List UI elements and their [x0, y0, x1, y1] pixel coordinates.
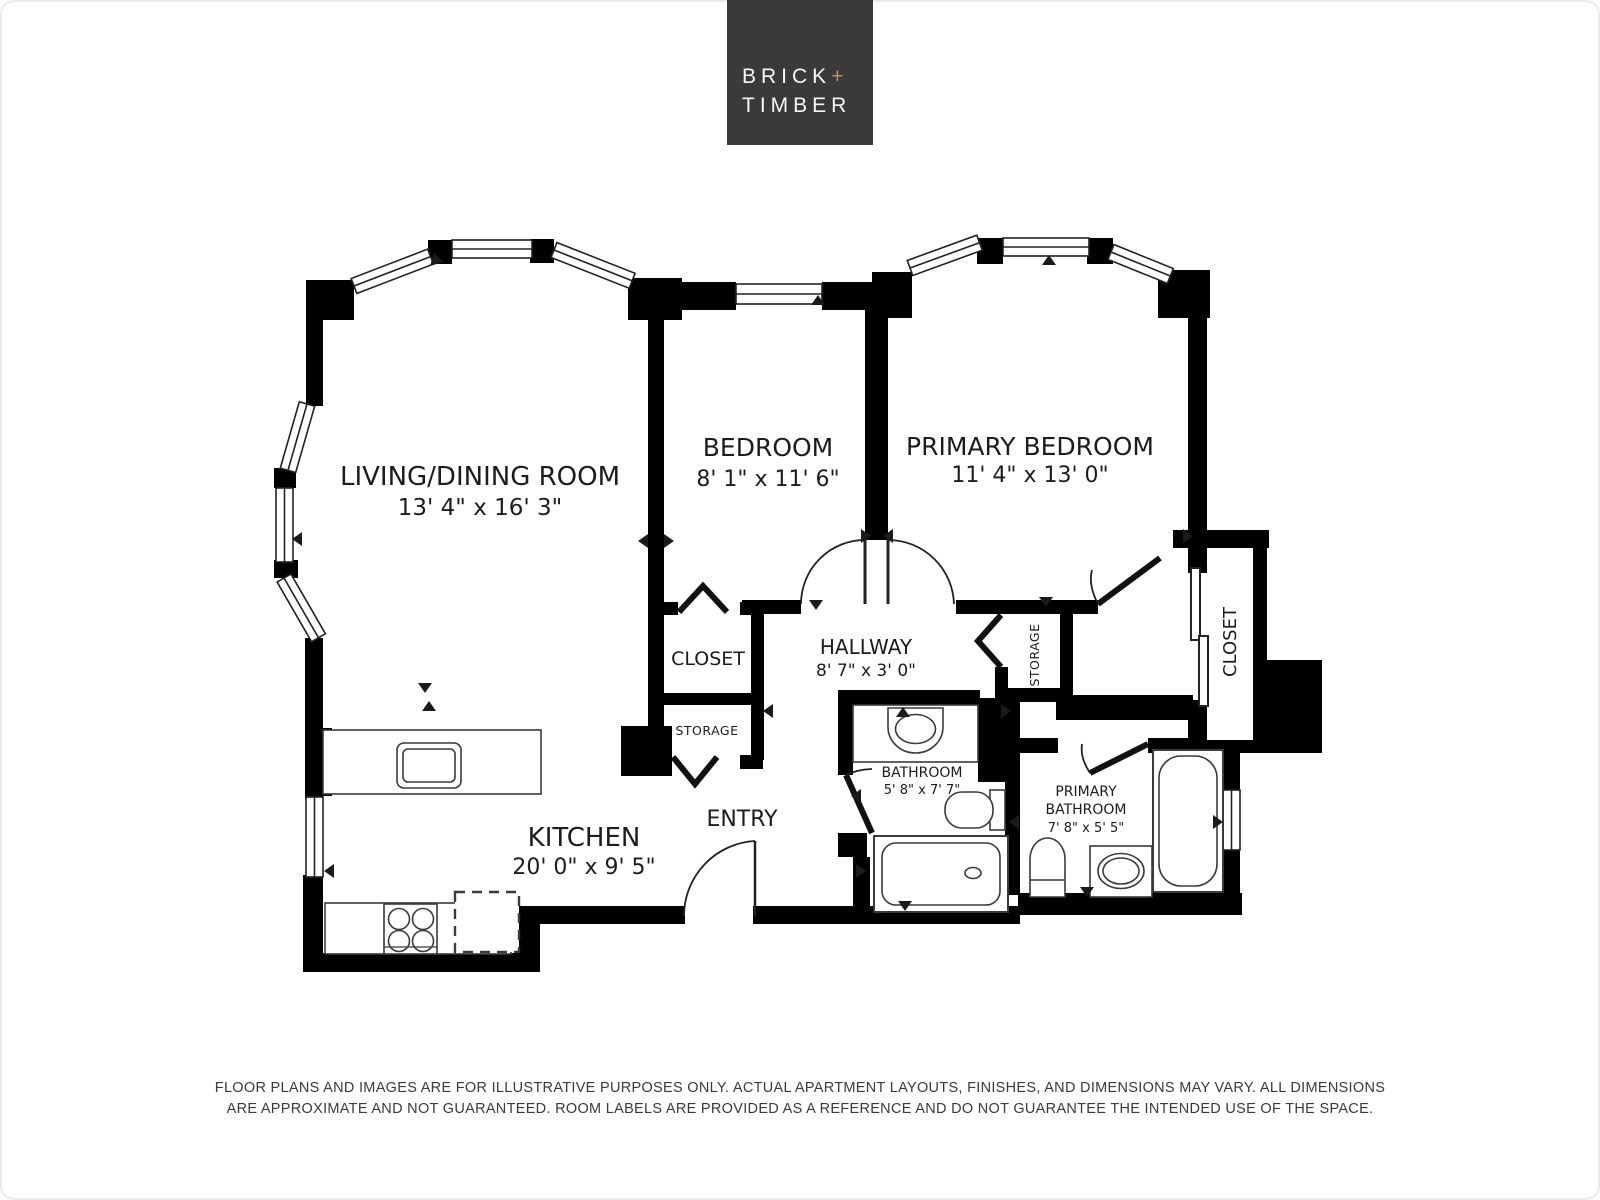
wall [1056, 695, 1193, 720]
wall [853, 857, 870, 909]
wall [1223, 753, 1240, 790]
wall [956, 600, 1098, 614]
disclaimer-line-2: ARE APPROXIMATE AND NOT GUARANTEED. ROOM… [0, 1099, 1600, 1120]
wall [303, 953, 540, 972]
living-room-dims: 13' 4" x 16' 3" [398, 495, 562, 521]
primary-bathtub-icon [1153, 750, 1223, 892]
window [907, 235, 982, 275]
window [1223, 790, 1240, 850]
disclaimer-line-1: FLOOR PLANS AND IMAGES ARE FOR ILLUSTRAT… [0, 1078, 1600, 1099]
closet-label: CLOSET [671, 648, 745, 670]
wall [742, 600, 801, 614]
refrigerator-icon [455, 892, 519, 952]
window [1003, 238, 1089, 256]
wall [978, 698, 1020, 782]
wall [1060, 601, 1073, 701]
wall [621, 726, 672, 776]
window [551, 243, 635, 289]
living-room-label: LIVING/DINING ROOM [340, 462, 620, 492]
primary-toilet-icon [1030, 838, 1065, 897]
hallway-label: HALLWAY [820, 635, 913, 659]
kitchen-island [323, 730, 541, 794]
bedroom-label: BEDROOM [703, 433, 834, 462]
labels-layer: LIVING/DINING ROOM 13' 4" x 16' 3" BEDRO… [340, 432, 1241, 880]
vestibule-door [1091, 558, 1160, 604]
primary-bedroom-door [888, 540, 954, 604]
wall [1223, 850, 1240, 897]
wall [865, 295, 888, 540]
bathroom-dims: 5' 8" x 7' 7" [884, 783, 960, 798]
wall [838, 690, 980, 705]
wall [838, 690, 853, 775]
primary-sink-icon [1090, 846, 1152, 897]
floorplan: LIVING/DINING ROOM 13' 4" x 16' 3" BEDRO… [0, 0, 1600, 1200]
window [351, 249, 433, 293]
wall [530, 239, 554, 263]
marker-icon [809, 600, 823, 610]
marker-icon [324, 864, 334, 878]
storage-label: STORAGE [675, 723, 738, 738]
storage-right-label: STORAGE [1027, 623, 1042, 686]
window [1108, 245, 1173, 284]
wall [838, 833, 867, 857]
marker-icon [664, 534, 674, 548]
kitchen-dims: 20' 0" x 9' 5" [512, 855, 655, 880]
brand-logo: BRICK+ TIMBER [727, 0, 873, 145]
entry-door [684, 841, 755, 916]
wall [538, 906, 685, 924]
storage-right-bifold-door [978, 615, 1001, 667]
window [280, 402, 314, 473]
primary-bathroom-label-1: PRIMARY [1055, 784, 1117, 800]
wall [306, 280, 354, 320]
wall [1190, 548, 1322, 753]
primary-bedroom-label: PRIMARY BEDROOM [906, 432, 1154, 461]
bathroom-label: BATHROOM [881, 765, 962, 781]
wall [652, 602, 678, 615]
closet-right-label: CLOSET [1220, 606, 1241, 677]
wall [518, 906, 540, 972]
closet-bifold-door [679, 586, 727, 612]
primary-bathroom-dims: 7' 8" x 5' 5" [1048, 821, 1124, 836]
primary-bedroom-dims: 11' 4" x 13' 0" [951, 463, 1108, 488]
marker-icon [418, 683, 432, 693]
marker-icon [422, 701, 436, 711]
kitchen-label: KITCHEN [528, 823, 641, 853]
logo-plus-icon: + [831, 65, 843, 88]
wall [740, 755, 763, 769]
primary-bathroom-label-2: BATHROOM [1045, 802, 1126, 818]
bathtub-icon [874, 836, 1008, 912]
window [452, 240, 532, 258]
disclaimer-text: FLOOR PLANS AND IMAGES ARE FOR ILLUSTRAT… [0, 1078, 1600, 1119]
marker-icon [638, 534, 648, 548]
wall [656, 282, 736, 310]
entry-label: ENTRY [706, 807, 778, 832]
wall [1020, 738, 1058, 753]
marker-icon [763, 704, 773, 718]
window [306, 797, 323, 877]
logo-brick: BRICK [742, 65, 831, 88]
bedroom-dims: 8' 1" x 11' 6" [696, 467, 839, 492]
hallway-dims: 8' 7" x 3' 0" [816, 661, 916, 681]
wall [751, 602, 764, 760]
primary-bathroom-door [1082, 744, 1148, 773]
window [276, 488, 293, 562]
logo-line-1: BRICK+ [742, 62, 873, 91]
closet-sliding-door [1191, 568, 1208, 706]
wall [658, 693, 760, 705]
window [736, 284, 822, 304]
storage-bifold-door [673, 757, 717, 784]
bathroom-sink-icon [853, 705, 978, 762]
logo-line-2: TIMBER [742, 91, 873, 120]
wall [306, 318, 323, 406]
wall [648, 318, 664, 728]
window [277, 574, 325, 642]
bedroom-door [801, 540, 865, 604]
